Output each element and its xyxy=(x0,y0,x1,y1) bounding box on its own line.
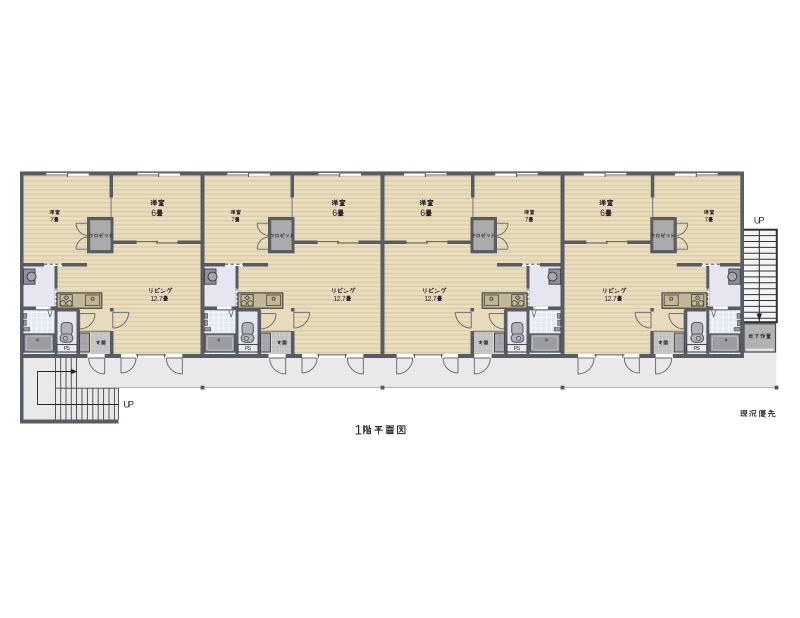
svg-text:7: 7 xyxy=(705,217,709,224)
svg-text:P: P xyxy=(128,400,134,410)
svg-text:S: S xyxy=(696,346,700,352)
svg-text:6: 6 xyxy=(420,208,425,218)
svg-text:6: 6 xyxy=(151,208,156,218)
svg-text:S: S xyxy=(66,346,70,352)
svg-text:7: 7 xyxy=(231,217,235,224)
svg-text:6: 6 xyxy=(600,208,605,218)
svg-text:1: 1 xyxy=(355,422,362,437)
svg-text:7: 7 xyxy=(613,296,617,303)
svg-text:7: 7 xyxy=(433,296,437,303)
svg-text:7: 7 xyxy=(50,217,54,224)
svg-text:7: 7 xyxy=(525,217,529,224)
svg-text:7: 7 xyxy=(342,296,346,303)
svg-text:7: 7 xyxy=(159,296,163,303)
svg-text:6: 6 xyxy=(332,208,337,218)
svg-text:P: P xyxy=(758,216,764,226)
svg-text:S: S xyxy=(516,346,520,352)
svg-text:S: S xyxy=(247,346,251,352)
